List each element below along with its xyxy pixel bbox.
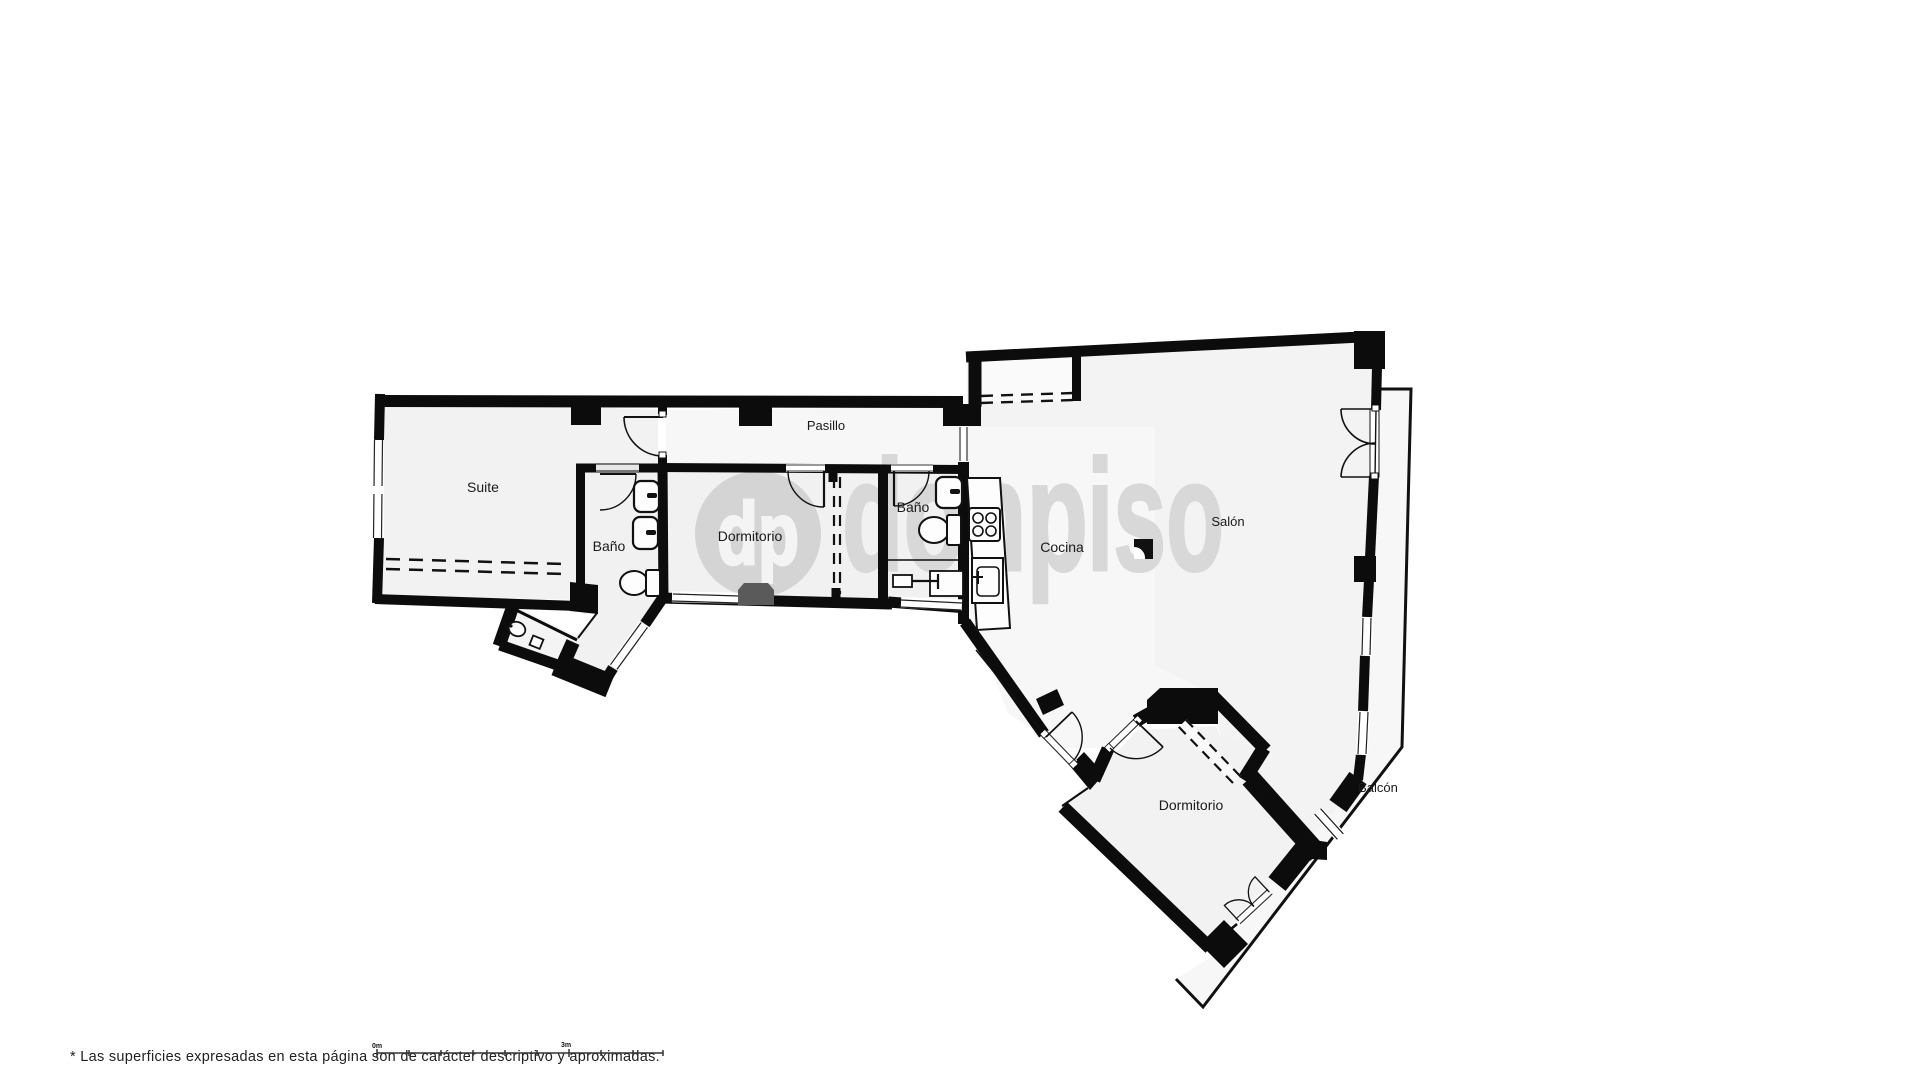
svg-text:Dormitorio: Dormitorio bbox=[1159, 797, 1224, 813]
svg-text:Baño: Baño bbox=[593, 538, 626, 554]
svg-text:iso: iso bbox=[1087, 428, 1224, 604]
svg-text:Pasillo: Pasillo bbox=[807, 418, 845, 433]
svg-text:Cocina: Cocina bbox=[1040, 539, 1084, 555]
svg-text:Salón: Salón bbox=[1211, 514, 1244, 529]
svg-text:* Las superficies expresadas e: * Las superficies expresadas en esta pág… bbox=[70, 1049, 660, 1065]
svg-text:3m: 3m bbox=[561, 1042, 571, 1049]
svg-text:0m: 0m bbox=[372, 1043, 382, 1050]
svg-text:Suite: Suite bbox=[467, 479, 499, 495]
svg-text:Balcón: Balcón bbox=[1358, 780, 1398, 795]
svg-text:Dormitorio: Dormitorio bbox=[718, 528, 783, 544]
svg-text:Baño: Baño bbox=[897, 499, 930, 515]
